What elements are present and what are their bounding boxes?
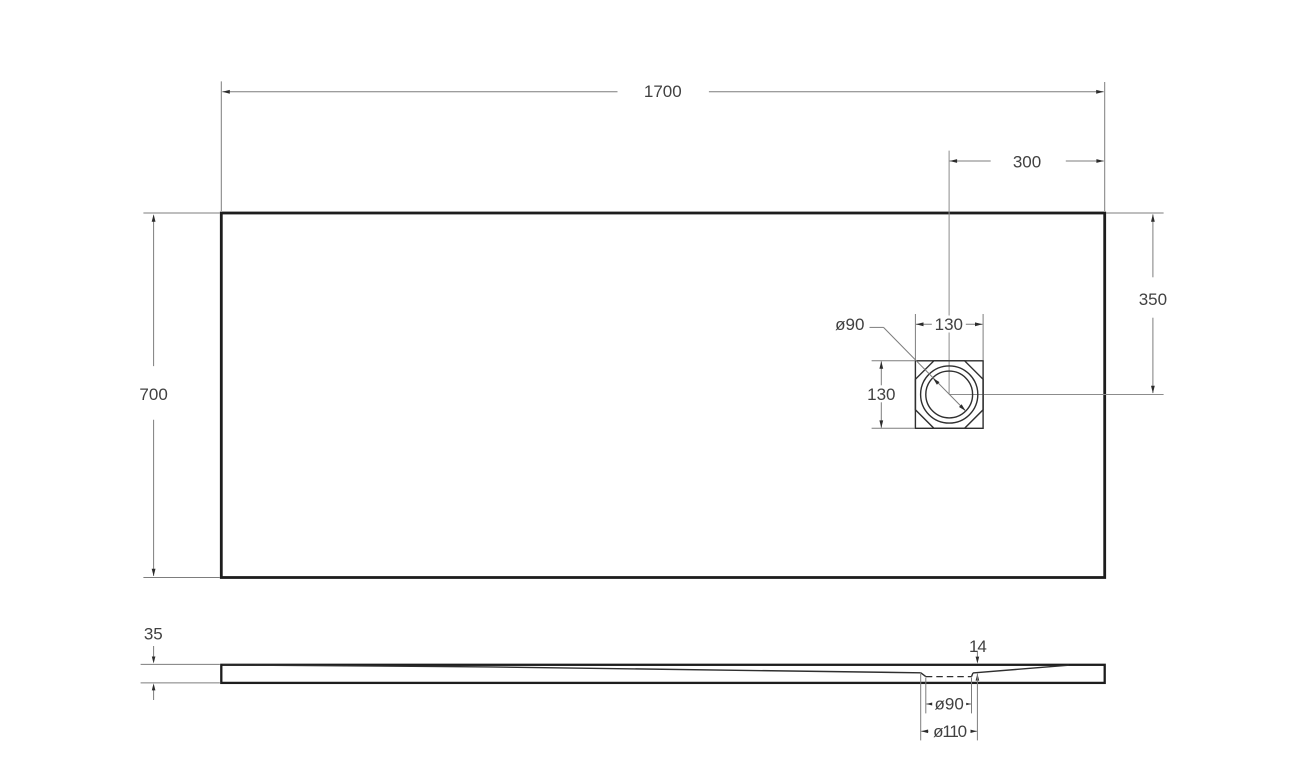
svg-text:350: 350 bbox=[1139, 290, 1167, 309]
svg-text:35: 35 bbox=[144, 625, 163, 644]
svg-text:ø90: ø90 bbox=[935, 695, 964, 714]
svg-text:700: 700 bbox=[139, 385, 167, 404]
svg-text:130: 130 bbox=[867, 385, 895, 404]
svg-text:1700: 1700 bbox=[644, 82, 682, 101]
svg-text:ø110: ø110 bbox=[933, 722, 966, 741]
svg-text:14: 14 bbox=[969, 637, 986, 656]
svg-text:ø90: ø90 bbox=[835, 315, 864, 334]
svg-text:300: 300 bbox=[1013, 153, 1041, 172]
svg-text:130: 130 bbox=[935, 315, 963, 334]
